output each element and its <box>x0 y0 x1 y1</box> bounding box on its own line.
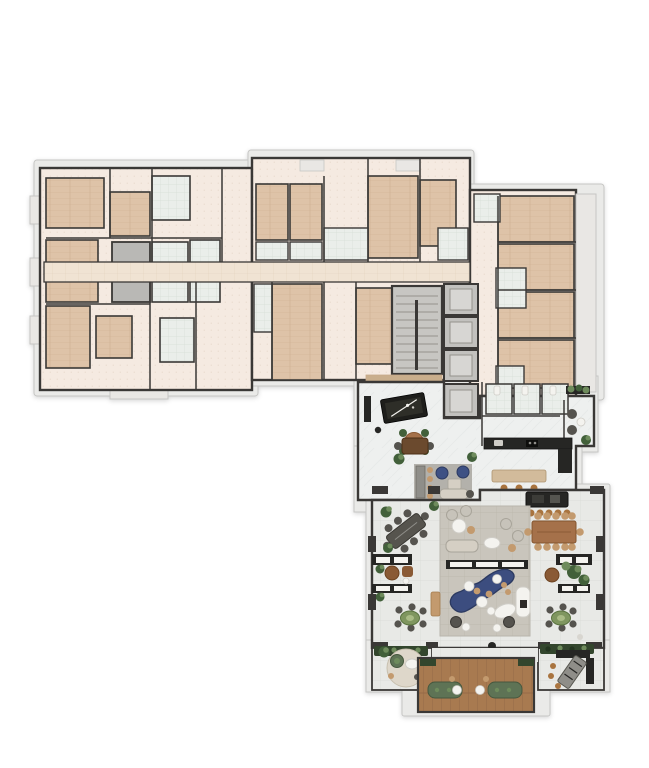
outdoor-sofa <box>446 540 478 552</box>
toilet <box>522 386 528 395</box>
deck-hedge <box>518 659 534 666</box>
elevator-bank <box>444 284 478 417</box>
deco-pebble <box>577 634 583 640</box>
potted-plant <box>376 593 385 602</box>
floor-plan-canvas <box>0 0 649 768</box>
potted-plant <box>383 543 393 553</box>
armchair-blue <box>457 466 469 478</box>
potted-plant <box>581 435 591 445</box>
pool-terrace <box>368 486 604 650</box>
swivel-chair <box>385 566 399 580</box>
sun-deck <box>418 658 534 712</box>
island-counter <box>492 470 546 482</box>
armchair-blue <box>436 467 448 479</box>
central-corridor <box>44 262 470 282</box>
cooktop <box>526 440 538 447</box>
lounge-chair <box>567 425 577 435</box>
swivel-chair <box>545 568 559 582</box>
toilet <box>550 386 556 395</box>
deck-hedge <box>420 659 436 666</box>
potted-plant <box>429 501 439 511</box>
side-table <box>577 418 585 426</box>
potted-plant <box>376 565 385 574</box>
lounge-chair <box>567 409 577 419</box>
potted-plant <box>394 454 405 465</box>
sink <box>494 440 503 446</box>
potted-plant <box>467 452 477 462</box>
east-apartments-wing <box>470 190 596 396</box>
east-balcony <box>576 194 596 392</box>
balcony-inset <box>396 160 420 171</box>
tall-cabinet <box>558 449 572 473</box>
potted-plant <box>379 647 390 658</box>
side-table <box>406 659 419 669</box>
bar-counter <box>416 466 425 498</box>
planter-bench-center <box>446 560 528 569</box>
balcony-inset <box>300 160 324 171</box>
stair-rail <box>415 300 418 370</box>
sun-lounger <box>516 587 530 617</box>
floor-lamp <box>375 427 381 433</box>
sideboard <box>364 396 371 422</box>
pool-bench <box>431 592 440 616</box>
sofa <box>440 489 468 499</box>
ottoman <box>466 490 474 498</box>
coffee-table <box>448 479 461 489</box>
oval-table <box>484 538 500 549</box>
toilet <box>494 386 500 395</box>
club-chair <box>402 566 413 577</box>
floor-plan-page <box>0 0 649 768</box>
